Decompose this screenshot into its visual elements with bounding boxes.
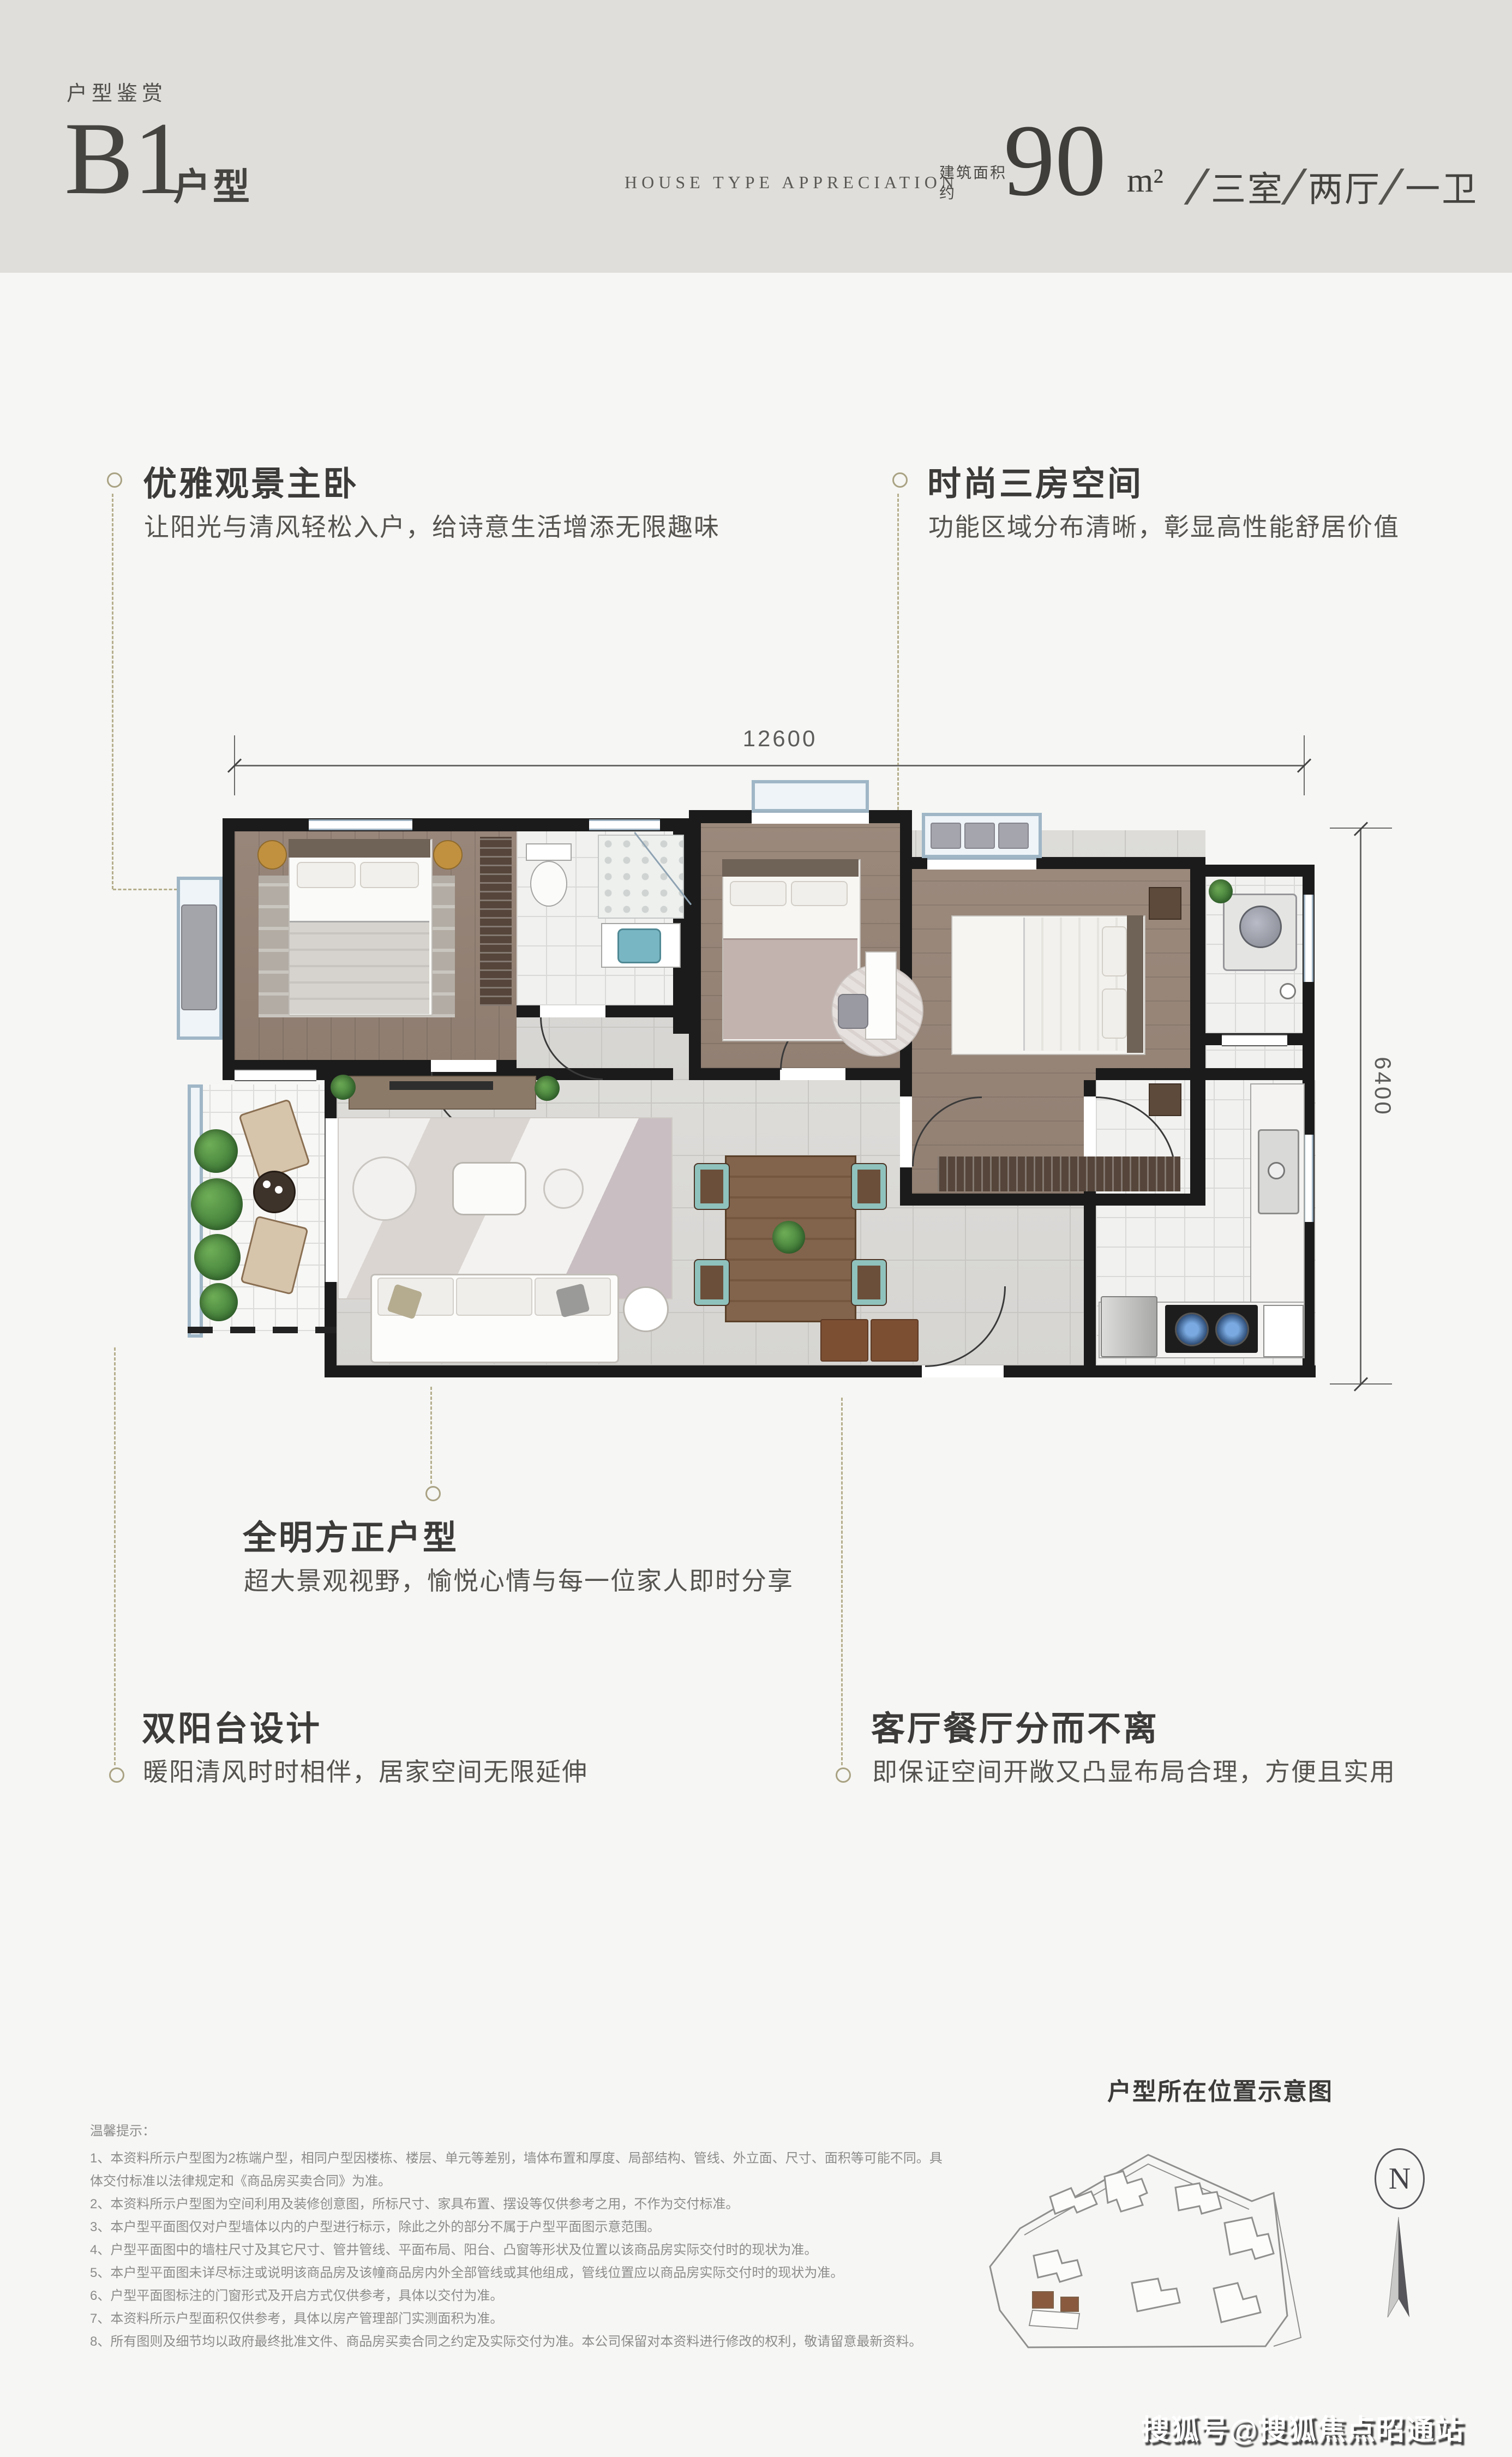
site-map bbox=[968, 2130, 1350, 2348]
entry-door-gap bbox=[922, 1365, 1004, 1377]
bed-headboard bbox=[289, 839, 430, 858]
balcony-table bbox=[253, 1171, 296, 1213]
marker-dot bbox=[836, 1767, 851, 1783]
nightstand bbox=[257, 840, 287, 870]
door-gap bbox=[431, 1060, 496, 1072]
wall bbox=[1190, 857, 1205, 1206]
disclaimer-item: 8、所有图则及细节均以政府最终批准文件、商品房买卖合同之约定及实际交付为准。本公… bbox=[90, 2330, 952, 2353]
poster-page: 户型鉴赏 B1 户型 HOUSE TYPE APPRECIATION 建筑面积 … bbox=[0, 0, 1512, 2457]
fridge bbox=[1101, 1296, 1157, 1357]
header-subtitle-en: HOUSE TYPE APPRECIATION bbox=[625, 172, 958, 193]
sliding-door bbox=[1222, 1034, 1287, 1046]
compass-needle-icon bbox=[1381, 2214, 1416, 2323]
desk bbox=[865, 951, 897, 1040]
disclaimer-item: 5、本户型平面图未详尽标注或说明该商品房及该幢商品房内外全部管线或其他组成，管线… bbox=[90, 2262, 952, 2285]
plant bbox=[331, 1075, 356, 1100]
dimension-height-label: 6400 bbox=[1370, 1043, 1396, 1130]
cushion bbox=[998, 823, 1029, 849]
floor-drain bbox=[1280, 983, 1296, 999]
marker-dot bbox=[107, 472, 122, 488]
watermark: 搜狐号@搜狐焦点昭通站 bbox=[1141, 2407, 1465, 2448]
wall bbox=[689, 823, 701, 1068]
leader-line bbox=[113, 889, 177, 890]
nightstand bbox=[1149, 887, 1181, 920]
corner-cabinet bbox=[1263, 1305, 1304, 1357]
floor-plan bbox=[177, 780, 1317, 1397]
disclaimer-title: 温馨提示： bbox=[90, 2120, 952, 2143]
annotation-title: 时尚三房空间 bbox=[927, 456, 1143, 505]
disclaimer-item: 7、本资料所示户型面积仅供参考，具体以房产管理部门实测面积为准。 bbox=[90, 2308, 952, 2330]
wardrobe bbox=[480, 837, 512, 1006]
door-gap bbox=[780, 1068, 845, 1080]
bathroom-sink bbox=[617, 928, 661, 963]
slash-icon: ∕ bbox=[1389, 157, 1397, 217]
leader-line bbox=[112, 494, 113, 889]
toilet-bowl bbox=[530, 861, 567, 907]
cushion bbox=[931, 823, 961, 849]
burner bbox=[1215, 1313, 1249, 1346]
disclaimer: 温馨提示： 1、本资料所示户型图为2栋端户型，相同户型因楼栋、楼层、单元等差别，… bbox=[90, 2120, 952, 2353]
leader-line bbox=[841, 1398, 843, 1765]
bed-headboard bbox=[722, 859, 859, 877]
tv bbox=[389, 1081, 493, 1090]
annotation-title: 双阳台设计 bbox=[142, 1701, 322, 1750]
bay-window bbox=[752, 780, 869, 812]
wall bbox=[1205, 865, 1315, 877]
wardrobe bbox=[938, 1156, 1180, 1191]
plant bbox=[200, 1283, 238, 1321]
cup bbox=[275, 1186, 283, 1194]
disclaimer-item: 3、本户型平面图仅对户型墙体以内的户型进行标示，除此之外的部分不属于户型平面图示… bbox=[90, 2216, 952, 2239]
area-label-line2: 约 bbox=[939, 183, 1007, 203]
annotation-title: 客厅餐厅分而不离 bbox=[871, 1701, 1159, 1750]
plant bbox=[191, 1178, 243, 1230]
plant bbox=[535, 1076, 560, 1101]
table-plant bbox=[772, 1221, 805, 1254]
area-value: 90 bbox=[1004, 109, 1106, 212]
shower-area bbox=[598, 835, 684, 919]
dimension-width-label: 12600 bbox=[731, 726, 829, 752]
annotation-subtitle: 即保证空间开敞又凸显布局合理，方便且实用 bbox=[872, 1752, 1396, 1788]
wall bbox=[223, 818, 235, 1072]
area-label: 建筑面积 约 bbox=[939, 163, 1007, 203]
room-spec: ∕ 三室 ∕ 两厅 ∕ 一卫 bbox=[1195, 154, 1478, 214]
wall bbox=[325, 1365, 1316, 1377]
pouf bbox=[352, 1156, 417, 1221]
blanket bbox=[290, 921, 429, 1014]
pillow bbox=[730, 881, 787, 906]
pouf bbox=[543, 1168, 584, 1209]
door-gap bbox=[900, 1096, 912, 1167]
window bbox=[927, 858, 1036, 870]
door-gap bbox=[540, 1005, 605, 1017]
wall bbox=[912, 1194, 1190, 1206]
plant bbox=[1209, 879, 1233, 903]
dining-chair bbox=[851, 1259, 887, 1306]
room-count-bedrooms: 三室 bbox=[1211, 161, 1284, 212]
annotation-subtitle: 超大景观视野，愉悦心情与每一位家人即时分享 bbox=[244, 1561, 794, 1597]
disclaimer-item: 4、户型平面图中的墙柱尺寸及其它尺寸、管井管线、平面布局、阳台、凸窗等形状及位置… bbox=[90, 2239, 952, 2262]
wall bbox=[1096, 1068, 1303, 1080]
washer-drum bbox=[1239, 906, 1282, 948]
nightstand bbox=[433, 840, 463, 870]
disclaimer-item: 6、户型平面图标注的门窗形式及开启方式仅供参考，具体以交付为准。 bbox=[90, 2285, 952, 2308]
site-map-title: 户型所在位置示意图 bbox=[1107, 2072, 1333, 2107]
side-table bbox=[623, 1286, 669, 1332]
leader-line bbox=[430, 1387, 432, 1484]
dining-chair bbox=[851, 1163, 887, 1210]
bed-headboard bbox=[1127, 915, 1143, 1053]
window bbox=[309, 819, 412, 830]
cup bbox=[263, 1180, 271, 1188]
pillow bbox=[791, 881, 848, 906]
window bbox=[752, 811, 869, 824]
window bbox=[1304, 1135, 1313, 1222]
header-band: 户型鉴赏 B1 户型 HOUSE TYPE APPRECIATION 建筑面积 … bbox=[0, 0, 1512, 273]
slash-icon: ∕ bbox=[1292, 157, 1300, 217]
balcony-bench bbox=[181, 904, 217, 1010]
coffee-tray bbox=[452, 1162, 526, 1215]
plant bbox=[194, 1129, 238, 1173]
unit-code: B1 bbox=[64, 107, 185, 211]
bay-cushions bbox=[931, 823, 1029, 849]
art-blanket bbox=[951, 916, 1033, 1052]
marker-dot bbox=[892, 472, 908, 488]
burner bbox=[1175, 1313, 1209, 1346]
annotation-title: 全明方正户型 bbox=[243, 1510, 459, 1559]
pillow bbox=[1102, 988, 1127, 1039]
dining-chair bbox=[694, 1259, 730, 1306]
dimension-line-top bbox=[235, 765, 1305, 766]
marker-dot bbox=[425, 1486, 441, 1501]
slash-icon: ∕ bbox=[1195, 157, 1203, 217]
toilet-tank bbox=[526, 843, 572, 861]
dimension-line-right bbox=[1360, 828, 1361, 1385]
nightstand bbox=[1149, 1083, 1181, 1116]
kitchen-faucet bbox=[1268, 1162, 1285, 1179]
sliding-door bbox=[325, 1118, 339, 1282]
annotation-subtitle: 功能区域分布清晰，彰显高性能舒居价值 bbox=[928, 507, 1400, 543]
dining-chair bbox=[694, 1163, 730, 1210]
marker-dot bbox=[109, 1767, 124, 1783]
annotation-subtitle: 让阳光与清风轻松入户，给诗意生活增添无限趣味 bbox=[144, 507, 720, 543]
garden-open-edge bbox=[188, 1327, 337, 1333]
compass-icon: N bbox=[1375, 2148, 1425, 2209]
unit-suffix: 户型 bbox=[173, 157, 252, 211]
plant bbox=[194, 1234, 241, 1280]
sliding-door bbox=[235, 1069, 316, 1081]
window bbox=[589, 819, 660, 830]
disclaimer-item: 2、本资料所示户型图为空间利用及装修创意图，所标尺寸、家具布置、摆设等仅供参考之… bbox=[90, 2193, 952, 2216]
pillow bbox=[297, 862, 356, 888]
leader-line bbox=[114, 1347, 116, 1765]
pillow bbox=[1102, 926, 1127, 976]
annotation-title: 优雅观景主卧 bbox=[143, 456, 359, 505]
area-label-line1: 建筑面积 bbox=[939, 163, 1007, 183]
annotation-subtitle: 暖阳清风时时相伴，居家空间无限延伸 bbox=[143, 1752, 588, 1788]
entry-stool bbox=[871, 1319, 919, 1362]
compass-label: N bbox=[1389, 2162, 1411, 2196]
disclaimer-item: 1、本资料所示户型图为2栋端户型，相同户型因楼栋、楼层、单元等差别，墙体布置和厚… bbox=[90, 2147, 952, 2193]
chair bbox=[838, 994, 868, 1029]
entry-stool bbox=[820, 1319, 868, 1362]
window bbox=[1304, 895, 1313, 982]
pillow bbox=[360, 862, 419, 888]
cushion bbox=[964, 823, 995, 849]
room-count-baths: 一卫 bbox=[1405, 161, 1478, 212]
sofa-cushion bbox=[456, 1278, 532, 1316]
room-count-halls: 两厅 bbox=[1308, 161, 1381, 212]
area-unit: m² bbox=[1127, 161, 1163, 200]
